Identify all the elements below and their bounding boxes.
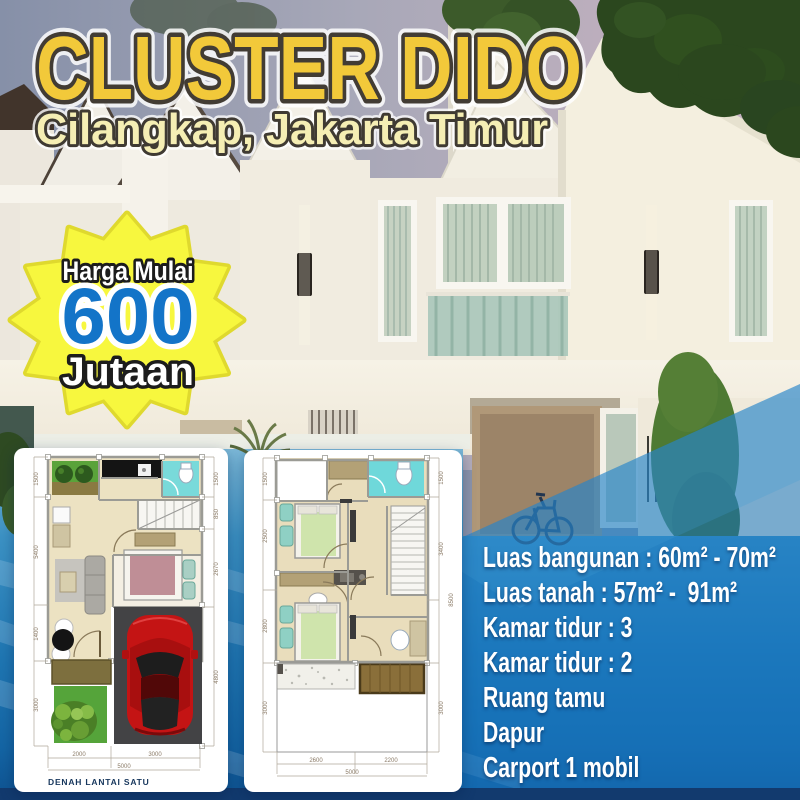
- svg-text:3000: 3000: [34, 698, 40, 712]
- svg-text:5000: 5000: [117, 764, 131, 770]
- svg-text:DENAH LANTAI SATU: DENAH LANTAI SATU: [48, 777, 150, 787]
- svg-text:2000: 2000: [72, 752, 86, 758]
- svg-text:3000: 3000: [439, 701, 445, 715]
- svg-text:1400: 1400: [34, 627, 40, 641]
- svg-text:2800: 2800: [263, 619, 269, 633]
- svg-text:Cilangkap, Jakarta Timur: Cilangkap, Jakarta Timur: [36, 105, 548, 154]
- svg-text:1500: 1500: [439, 471, 445, 485]
- svg-text:3400: 3400: [439, 542, 445, 556]
- svg-text:CLUSTER DIDO: CLUSTER DIDO: [36, 19, 582, 119]
- svg-text:3000: 3000: [148, 752, 162, 758]
- svg-text:4800: 4800: [214, 670, 220, 684]
- svg-text:2200: 2200: [384, 758, 398, 764]
- svg-text:600: 600: [62, 271, 195, 360]
- svg-text:1500: 1500: [214, 472, 220, 486]
- svg-text:1500: 1500: [34, 472, 40, 486]
- svg-text:2600: 2600: [309, 758, 323, 764]
- svg-text:850: 850: [214, 508, 220, 519]
- svg-text:2670: 2670: [214, 562, 220, 576]
- svg-text:Jutaan: Jutaan: [62, 350, 194, 394]
- svg-text:1500: 1500: [263, 472, 269, 486]
- svg-text:2500: 2500: [263, 529, 269, 543]
- svg-text:8500: 8500: [449, 593, 455, 607]
- svg-text:5000: 5000: [345, 770, 359, 776]
- svg-text:3000: 3000: [263, 701, 269, 715]
- svg-text:5400: 5400: [34, 545, 40, 559]
